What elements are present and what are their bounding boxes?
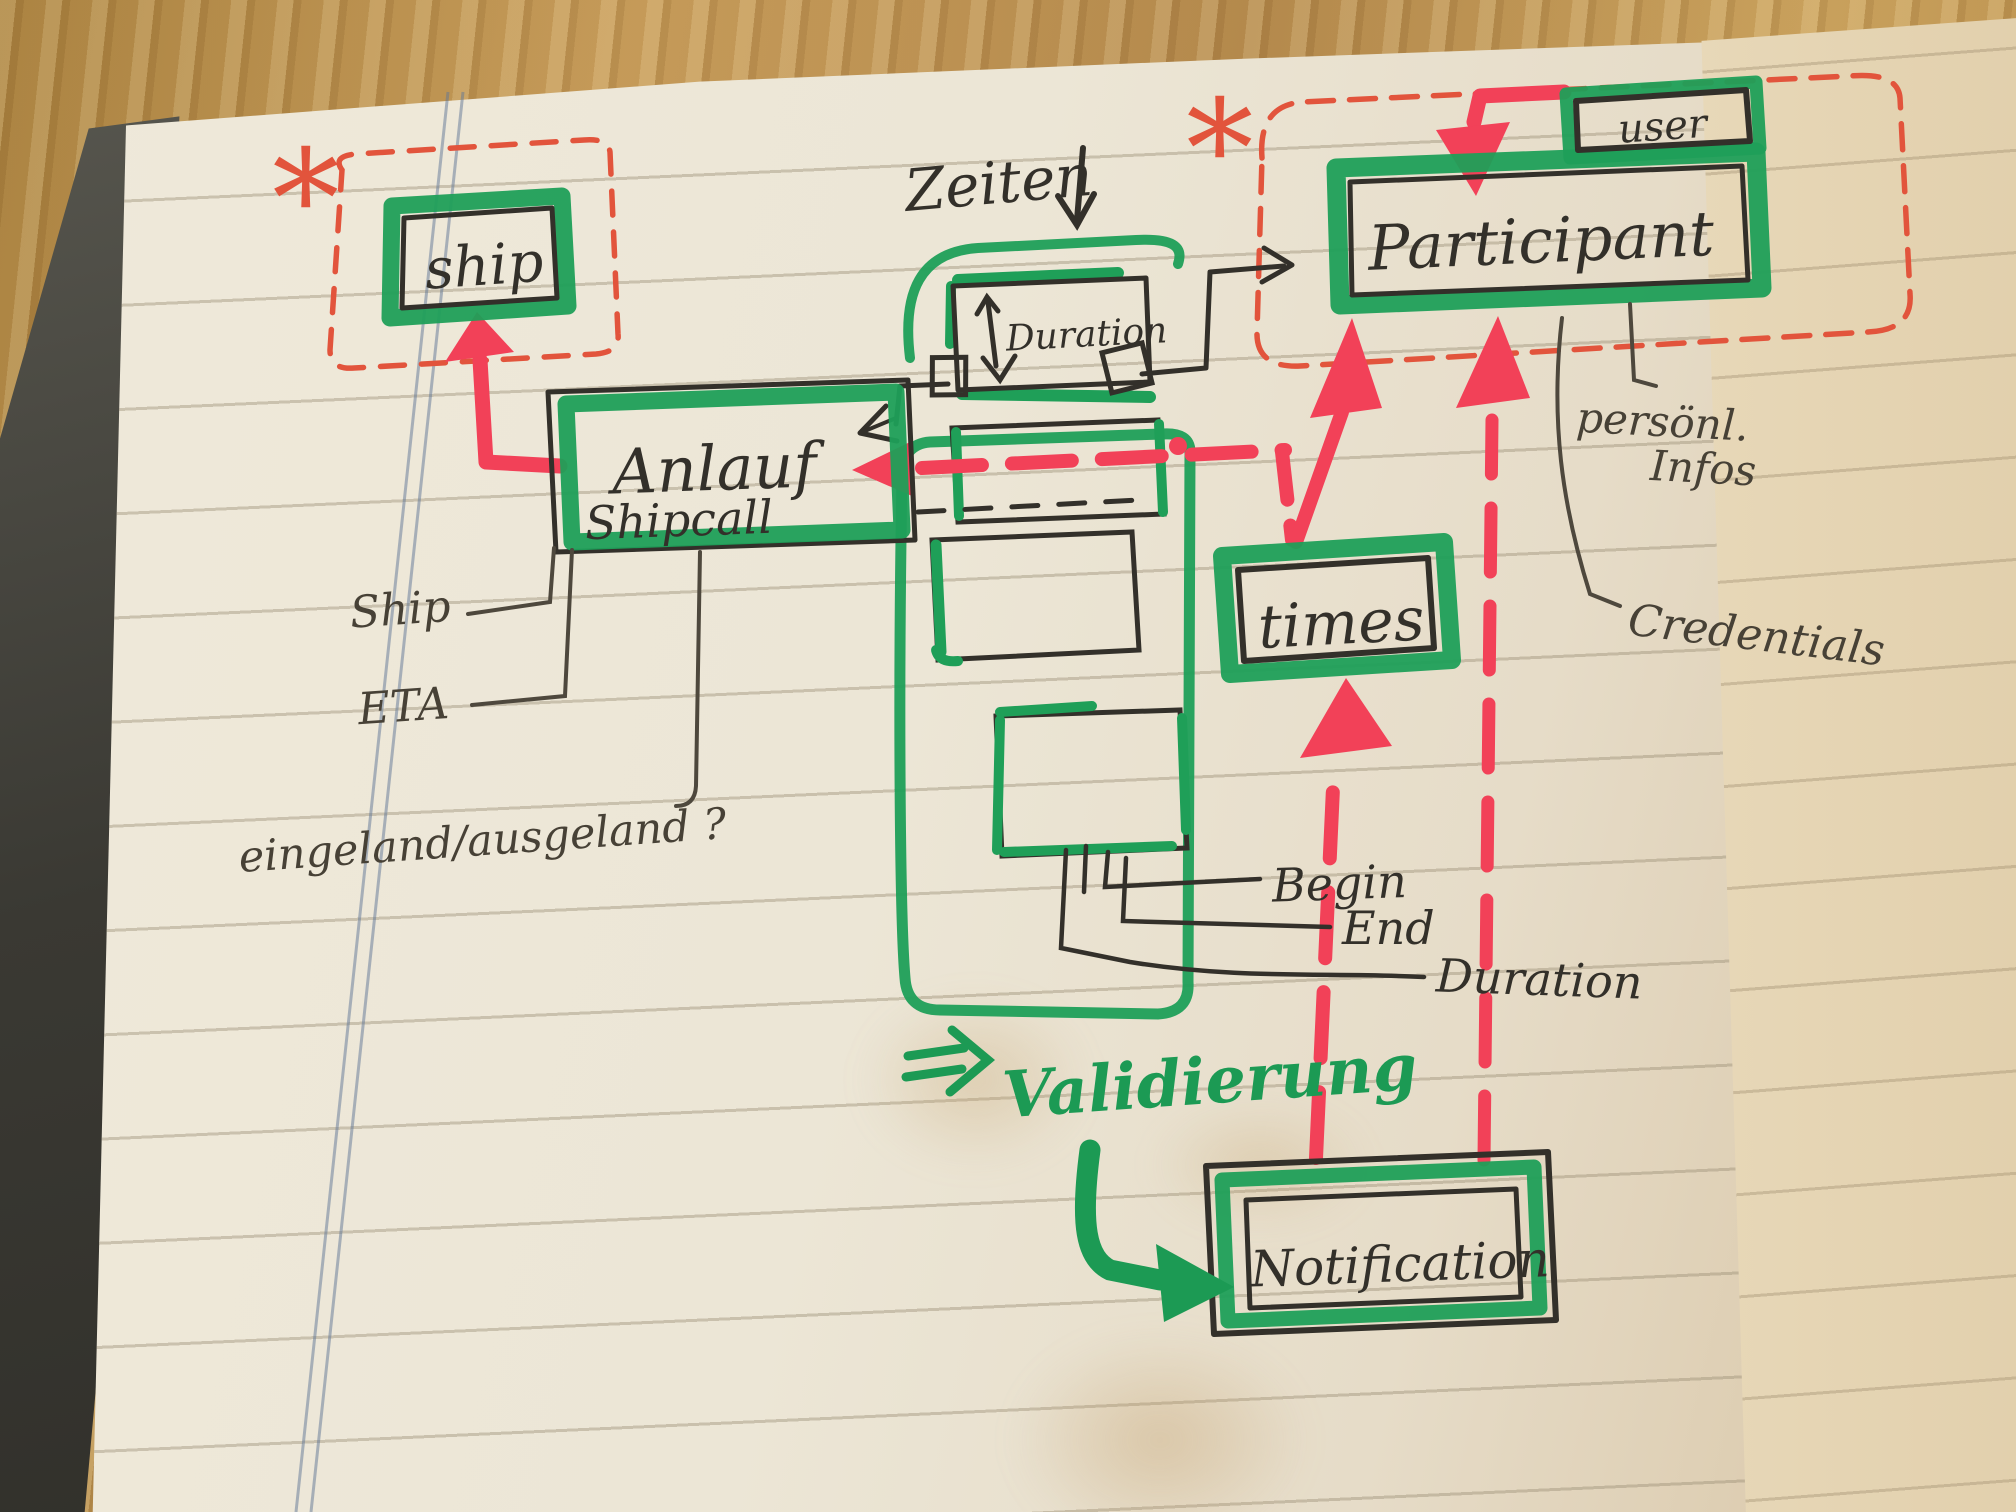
zeiten-label: Zeiten xyxy=(900,141,1095,225)
attr-credentials: Credentials xyxy=(1557,318,1887,677)
arrow-notification-to-participant xyxy=(1456,316,1530,1160)
user-box: user xyxy=(1566,82,1760,158)
arrow-dashed-to-anlauf xyxy=(852,437,1292,540)
shipcall-box-label: Shipcall xyxy=(584,490,774,551)
arrow-times-to-participant xyxy=(1296,318,1382,542)
validierung-label: Validierung xyxy=(1000,1030,1419,1134)
ship-box-label: ship xyxy=(423,230,546,303)
asterisk-right: * xyxy=(1186,71,1254,228)
attr-credentials-label: Credentials xyxy=(1625,595,1887,677)
arrow-anlauf-to-ship xyxy=(445,312,560,466)
asterisk-left: * xyxy=(272,121,340,278)
attr-eta-label: ETA xyxy=(355,678,450,735)
validierung-note: Validierung xyxy=(906,1030,1420,1134)
attr-ship-label: Ship xyxy=(348,581,452,639)
attr-personal-line2: Infos xyxy=(1648,441,1757,496)
duration-corner-square-left xyxy=(927,353,970,400)
participant-box-label: Participant xyxy=(1365,197,1715,285)
implies-arrow-icon xyxy=(906,1030,988,1092)
zeit-slot-box-3 xyxy=(996,706,1187,856)
attr-duration-label: Duration xyxy=(1434,948,1643,1009)
notification-box: Notification xyxy=(1206,1152,1556,1334)
attr-inout-label: eingeland/ausgeland ? xyxy=(237,799,729,883)
attr-end-label: End xyxy=(1341,901,1435,955)
user-box-label: user xyxy=(1616,101,1711,153)
attr-ship: Ship xyxy=(348,548,554,639)
anlauf-box: Anlauf Shipcall xyxy=(548,380,915,552)
attr-inout: eingeland/ausgeland ? xyxy=(237,552,729,883)
times-box: times xyxy=(1222,542,1452,674)
participant-box: Participant xyxy=(1336,152,1762,305)
notification-box-label: Notification xyxy=(1248,1230,1550,1298)
arrow-user-to-participant xyxy=(1436,92,1564,196)
sketch-layer: * * xyxy=(0,0,2016,1512)
zeit-slot-box-2 xyxy=(932,532,1139,661)
duration-box: Duration xyxy=(927,273,1168,400)
times-box-label: times xyxy=(1256,584,1426,663)
attr-personal-infos: persönl. Infos xyxy=(1575,304,1757,495)
zeit-slot-divider-dashed xyxy=(918,500,1138,512)
ship-box: ship xyxy=(390,196,568,318)
notebook-photo: * * xyxy=(0,0,2016,1512)
